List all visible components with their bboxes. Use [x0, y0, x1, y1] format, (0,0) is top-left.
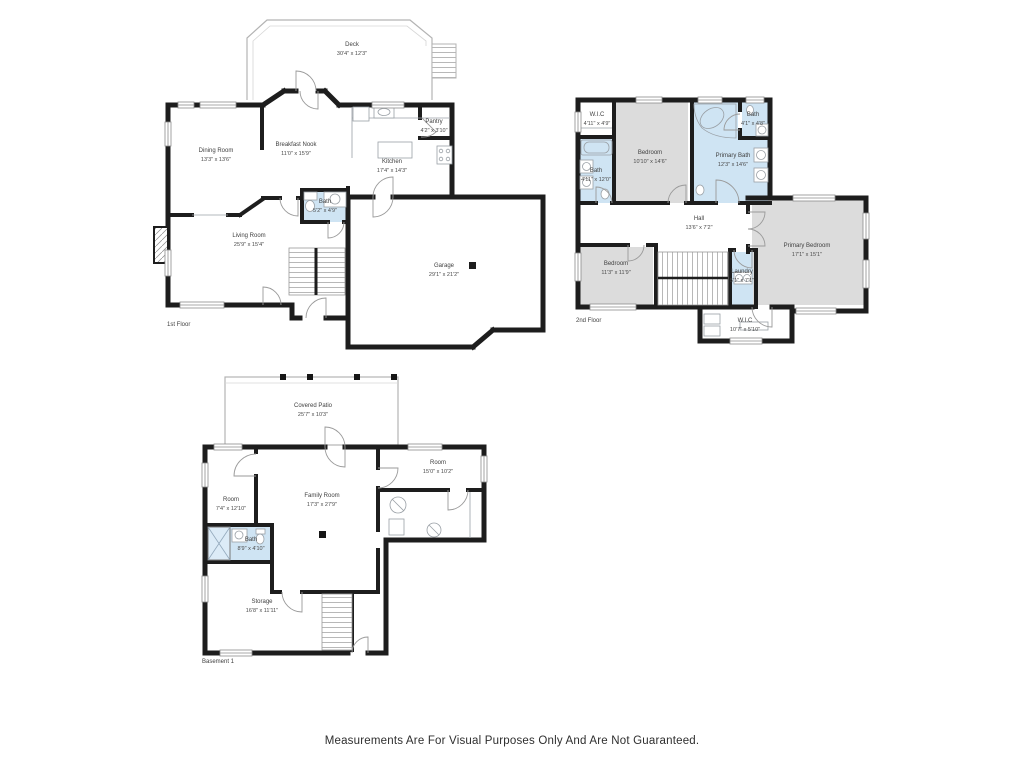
room-dims: 30'4" x 12'3"	[337, 50, 367, 59]
room-label-wic-top: W.I.C 4'11" x 4'9"	[584, 111, 611, 129]
room-name: Bedroom	[601, 260, 630, 269]
room-dims: 17'4" x 14'3"	[377, 167, 407, 176]
room-dims: 10'10" x 14'6"	[633, 158, 666, 167]
room-name: Storage	[246, 598, 278, 607]
room-name: W.I.C	[730, 317, 760, 326]
room-dims: 25'7" x 10'3"	[294, 411, 332, 420]
room-label-wic-bottom: W.I.C 10'7" x 5'10"	[730, 317, 760, 335]
room-dims: 25'9" x 15'4"	[232, 241, 265, 250]
room-dims: 10'7" x 5'10"	[730, 326, 760, 335]
room-label-garage: Garage 29'1" x 21'2"	[429, 262, 459, 280]
room-name: W.I.C	[584, 111, 611, 120]
room-dims: 11'3" x 11'9"	[601, 269, 630, 278]
room-label-deck: Deck 30'4" x 12'3"	[337, 41, 367, 59]
room-label-room-left: Room 7'4" x 12'10"	[216, 496, 246, 514]
room-label-bath-top: Bath 4'1" x 4'8"	[741, 111, 765, 129]
room-name: Bedroom	[633, 149, 666, 158]
room-label-dining-room: Dining Room 13'3" x 13'6"	[199, 147, 234, 165]
room-label-primary-bedroom: Primary Bedroom 17'1" x 15'1"	[784, 242, 831, 260]
room-dims: 17'3" x 27'9"	[304, 501, 339, 510]
room-dims: 4'2" x 3'10"	[420, 127, 447, 136]
floor-label-basement: Basement 1	[202, 659, 234, 665]
room-dims: 13'6" x 7'2"	[685, 224, 712, 233]
room-name: Breakfast Nook	[275, 141, 316, 150]
room-name: Bath	[581, 167, 611, 176]
room-label-bath-basement: Bath 8'9" x 4'10"	[237, 536, 264, 554]
room-label-living-room: Living Room 25'9" x 15'4"	[232, 232, 265, 250]
room-dims: 4'11" x 4'9"	[584, 120, 611, 129]
room-dims: 7'4" x 12'10"	[216, 505, 246, 514]
room-name: Bath	[741, 111, 765, 120]
room-label-bath-left: Bath 4'11" x 12'0"	[581, 167, 611, 185]
room-label-bedroom-top: Bedroom 10'10" x 14'6"	[633, 149, 666, 167]
room-label-hall: Hall 13'6" x 7'2"	[685, 215, 712, 233]
room-dims: 29'1" x 21'2"	[429, 271, 459, 280]
room-name: Dining Room	[199, 147, 234, 156]
room-name: Bath	[237, 536, 264, 545]
basement-plan	[202, 374, 487, 656]
room-label-bedroom-left: Bedroom 11'3" x 11'9"	[601, 260, 630, 278]
room-dims: 5'1" x 7'1"	[730, 277, 754, 286]
room-dims: 5'2" x 4'9"	[313, 207, 337, 216]
floorplan-page: Deck 30'4" x 12'3" Dining Room 13'3" x 1…	[0, 0, 1024, 768]
room-dims: 16'8" x 11'11"	[246, 607, 278, 616]
disclaimer-text: Measurements Are For Visual Purposes Onl…	[0, 735, 1024, 747]
floorplan-drawing	[0, 0, 1024, 768]
room-label-pantry: Pantry 4'2" x 3'10"	[420, 118, 447, 136]
floor-1-plan	[154, 20, 543, 347]
room-label-kitchen: Kitchen 17'4" x 14'3"	[377, 158, 407, 176]
floor-label-2nd: 2nd Floor	[576, 318, 601, 324]
room-name: Primary Bath	[716, 152, 751, 161]
room-label-room-right: Room 15'0" x 10'2"	[423, 459, 453, 477]
floor-label-1st: 1st Floor	[167, 322, 190, 328]
room-name: Kitchen	[377, 158, 407, 167]
room-dims: 11'0" x 15'9"	[275, 150, 316, 159]
room-label-storage: Storage 16'8" x 11'11"	[246, 598, 278, 616]
floor-2-plan	[575, 97, 869, 344]
room-dims: 8'9" x 4'10"	[237, 545, 264, 554]
room-label-breakfast-nook: Breakfast Nook 11'0" x 15'9"	[275, 141, 316, 159]
room-name: Garage	[429, 262, 459, 271]
room-name: Room	[216, 496, 246, 505]
room-label-bath-1f: Bath 5'2" x 4'9"	[313, 198, 337, 216]
room-name: Covered Patio	[294, 402, 332, 411]
room-name: Pantry	[420, 118, 447, 127]
room-dims: 17'1" x 15'1"	[784, 251, 831, 260]
room-label-covered-patio: Covered Patio 25'7" x 10'3"	[294, 402, 332, 420]
room-name: Deck	[337, 41, 367, 50]
room-dims: 12'3" x 14'6"	[716, 161, 751, 170]
room-name: Family Room	[304, 492, 339, 501]
room-name: Primary Bedroom	[784, 242, 831, 251]
room-label-primary-bath: Primary Bath 12'3" x 14'6"	[716, 152, 751, 170]
room-name: Room	[423, 459, 453, 468]
room-dims: 4'11" x 12'0"	[581, 176, 611, 185]
room-dims: 15'0" x 10'2"	[423, 468, 453, 477]
room-name: Laundry	[730, 268, 754, 277]
room-dims: 13'3" x 13'6"	[199, 156, 234, 165]
room-name: Hall	[685, 215, 712, 224]
room-dims: 4'1" x 4'8"	[741, 120, 765, 129]
room-name: Living Room	[232, 232, 265, 241]
room-label-laundry: Laundry 5'1" x 7'1"	[730, 268, 754, 286]
room-name: Bath	[313, 198, 337, 207]
room-label-family-room: Family Room 17'3" x 27'9"	[304, 492, 339, 510]
